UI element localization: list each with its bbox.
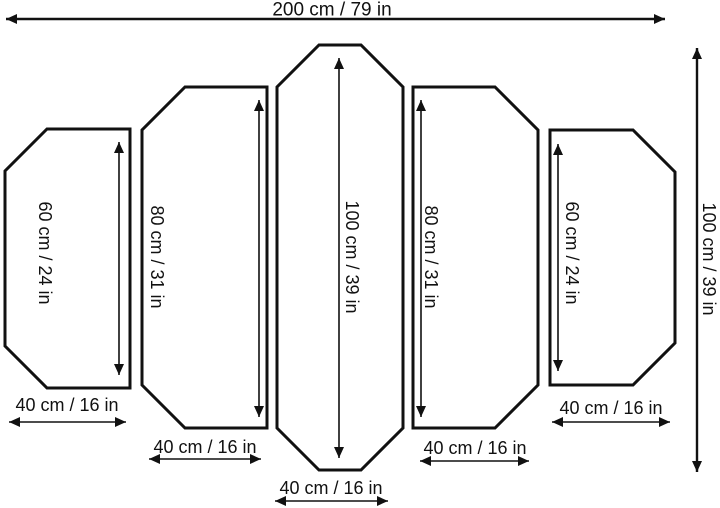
- five-panel-size-diagram: 200 cm / 79 in 100 cm / 39 in 60 cm / 24…: [0, 0, 720, 508]
- panel-4-width-label: 40 cm / 16 in: [423, 439, 526, 457]
- panel-3-height-label: 100 cm / 39 in: [343, 200, 361, 313]
- panel-2-width-label: 40 cm / 16 in: [153, 438, 256, 456]
- overall-height-label: 100 cm / 39 in: [700, 202, 718, 315]
- panel-1-width-label: 40 cm / 16 in: [15, 396, 118, 414]
- panel-5-height-label: 60 cm / 24 in: [563, 201, 581, 304]
- panel-3-width-label: 40 cm / 16 in: [279, 479, 382, 497]
- panel-3-shape: [277, 45, 403, 470]
- panel-1-shape: [5, 129, 130, 388]
- panel-1-height-label: 60 cm / 24 in: [36, 201, 54, 304]
- panel-2-height-label: 80 cm / 31 in: [148, 205, 166, 308]
- panel-5-width-label: 40 cm / 16 in: [559, 399, 662, 417]
- panel-4-height-label: 80 cm / 31 in: [422, 205, 440, 308]
- overall-width-label: 200 cm / 79 in: [272, 1, 391, 20]
